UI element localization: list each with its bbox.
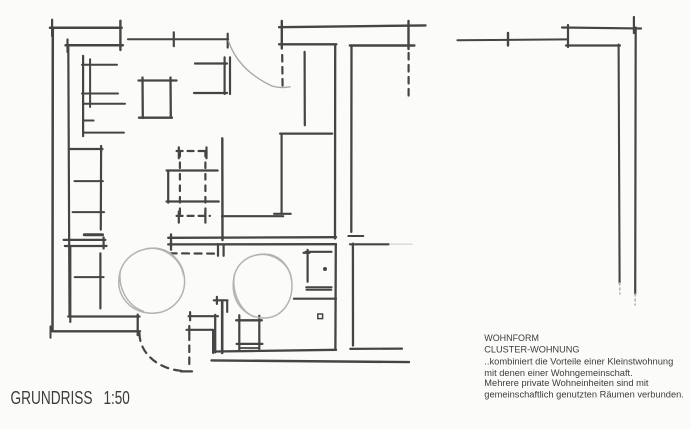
svg-text:Mehrere private Wohneinheiten: Mehrere private Wohneinheiten sind mit <box>484 378 649 389</box>
svg-text:..kombiniert die Vorteile eine: ..kombiniert die Vorteile einer Kleinstw… <box>484 357 673 368</box>
svg-text:1:50: 1:50 <box>104 387 130 408</box>
svg-text:gemeinschaftlich genutzten Räu: gemeinschaftlich genutzten Räumen verbun… <box>484 389 684 400</box>
svg-text:CLUSTER-WOHNUNG: CLUSTER-WOHNUNG <box>484 344 579 355</box>
svg-text:WOHNFORM: WOHNFORM <box>484 333 539 344</box>
svg-text:GRUNDRISS: GRUNDRISS <box>11 387 93 408</box>
